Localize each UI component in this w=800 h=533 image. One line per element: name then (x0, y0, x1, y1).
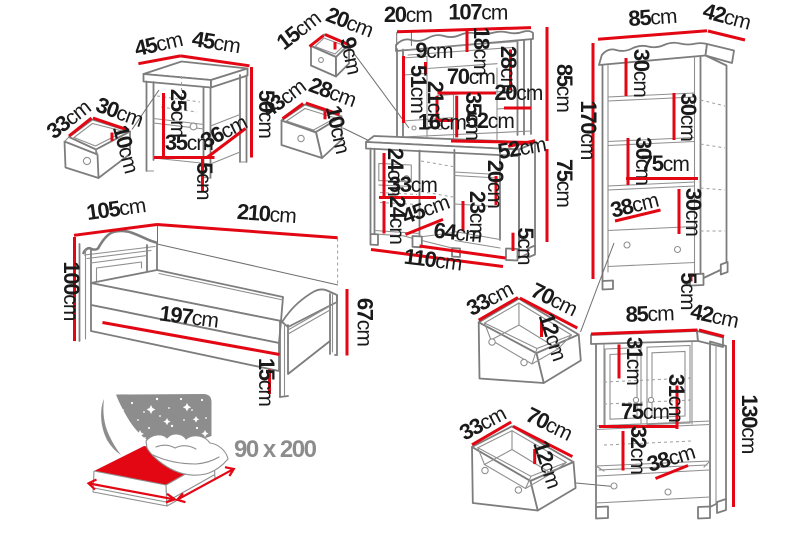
svg-text:30cm: 30cm (681, 188, 706, 237)
svg-text:107cm: 107cm (448, 0, 508, 25)
svg-text:9cm: 9cm (415, 38, 453, 63)
svg-text:16cm: 16cm (418, 110, 467, 135)
svg-text:5cm: 5cm (513, 227, 538, 265)
svg-text:5cm: 5cm (192, 162, 217, 200)
svg-text:30cm: 30cm (676, 93, 701, 142)
svg-text:33cm: 33cm (389, 172, 438, 197)
svg-text:20cm: 20cm (384, 2, 433, 27)
svg-text:20cm: 20cm (483, 160, 508, 209)
svg-text:70cm: 70cm (447, 64, 496, 89)
svg-text:31cm: 31cm (622, 337, 647, 386)
svg-text:52cm: 52cm (466, 108, 515, 133)
svg-text:75cm: 75cm (552, 159, 577, 208)
svg-text:75cm: 75cm (641, 151, 690, 176)
svg-text:30cm: 30cm (629, 49, 654, 98)
svg-text:85cm: 85cm (552, 64, 577, 113)
svg-text:100cm: 100cm (59, 261, 84, 321)
svg-text:85cm: 85cm (628, 3, 678, 31)
svg-text:130cm: 130cm (737, 394, 762, 454)
svg-text:90 x 200: 90 x 200 (234, 436, 317, 463)
svg-text:15cm: 15cm (254, 358, 279, 407)
svg-text:85cm: 85cm (625, 300, 674, 327)
svg-text:67cm: 67cm (353, 298, 378, 347)
svg-text:75cm: 75cm (621, 399, 670, 424)
svg-text:20cm: 20cm (494, 80, 543, 105)
svg-text:32cm: 32cm (626, 426, 651, 475)
svg-text:170cm: 170cm (576, 100, 601, 160)
